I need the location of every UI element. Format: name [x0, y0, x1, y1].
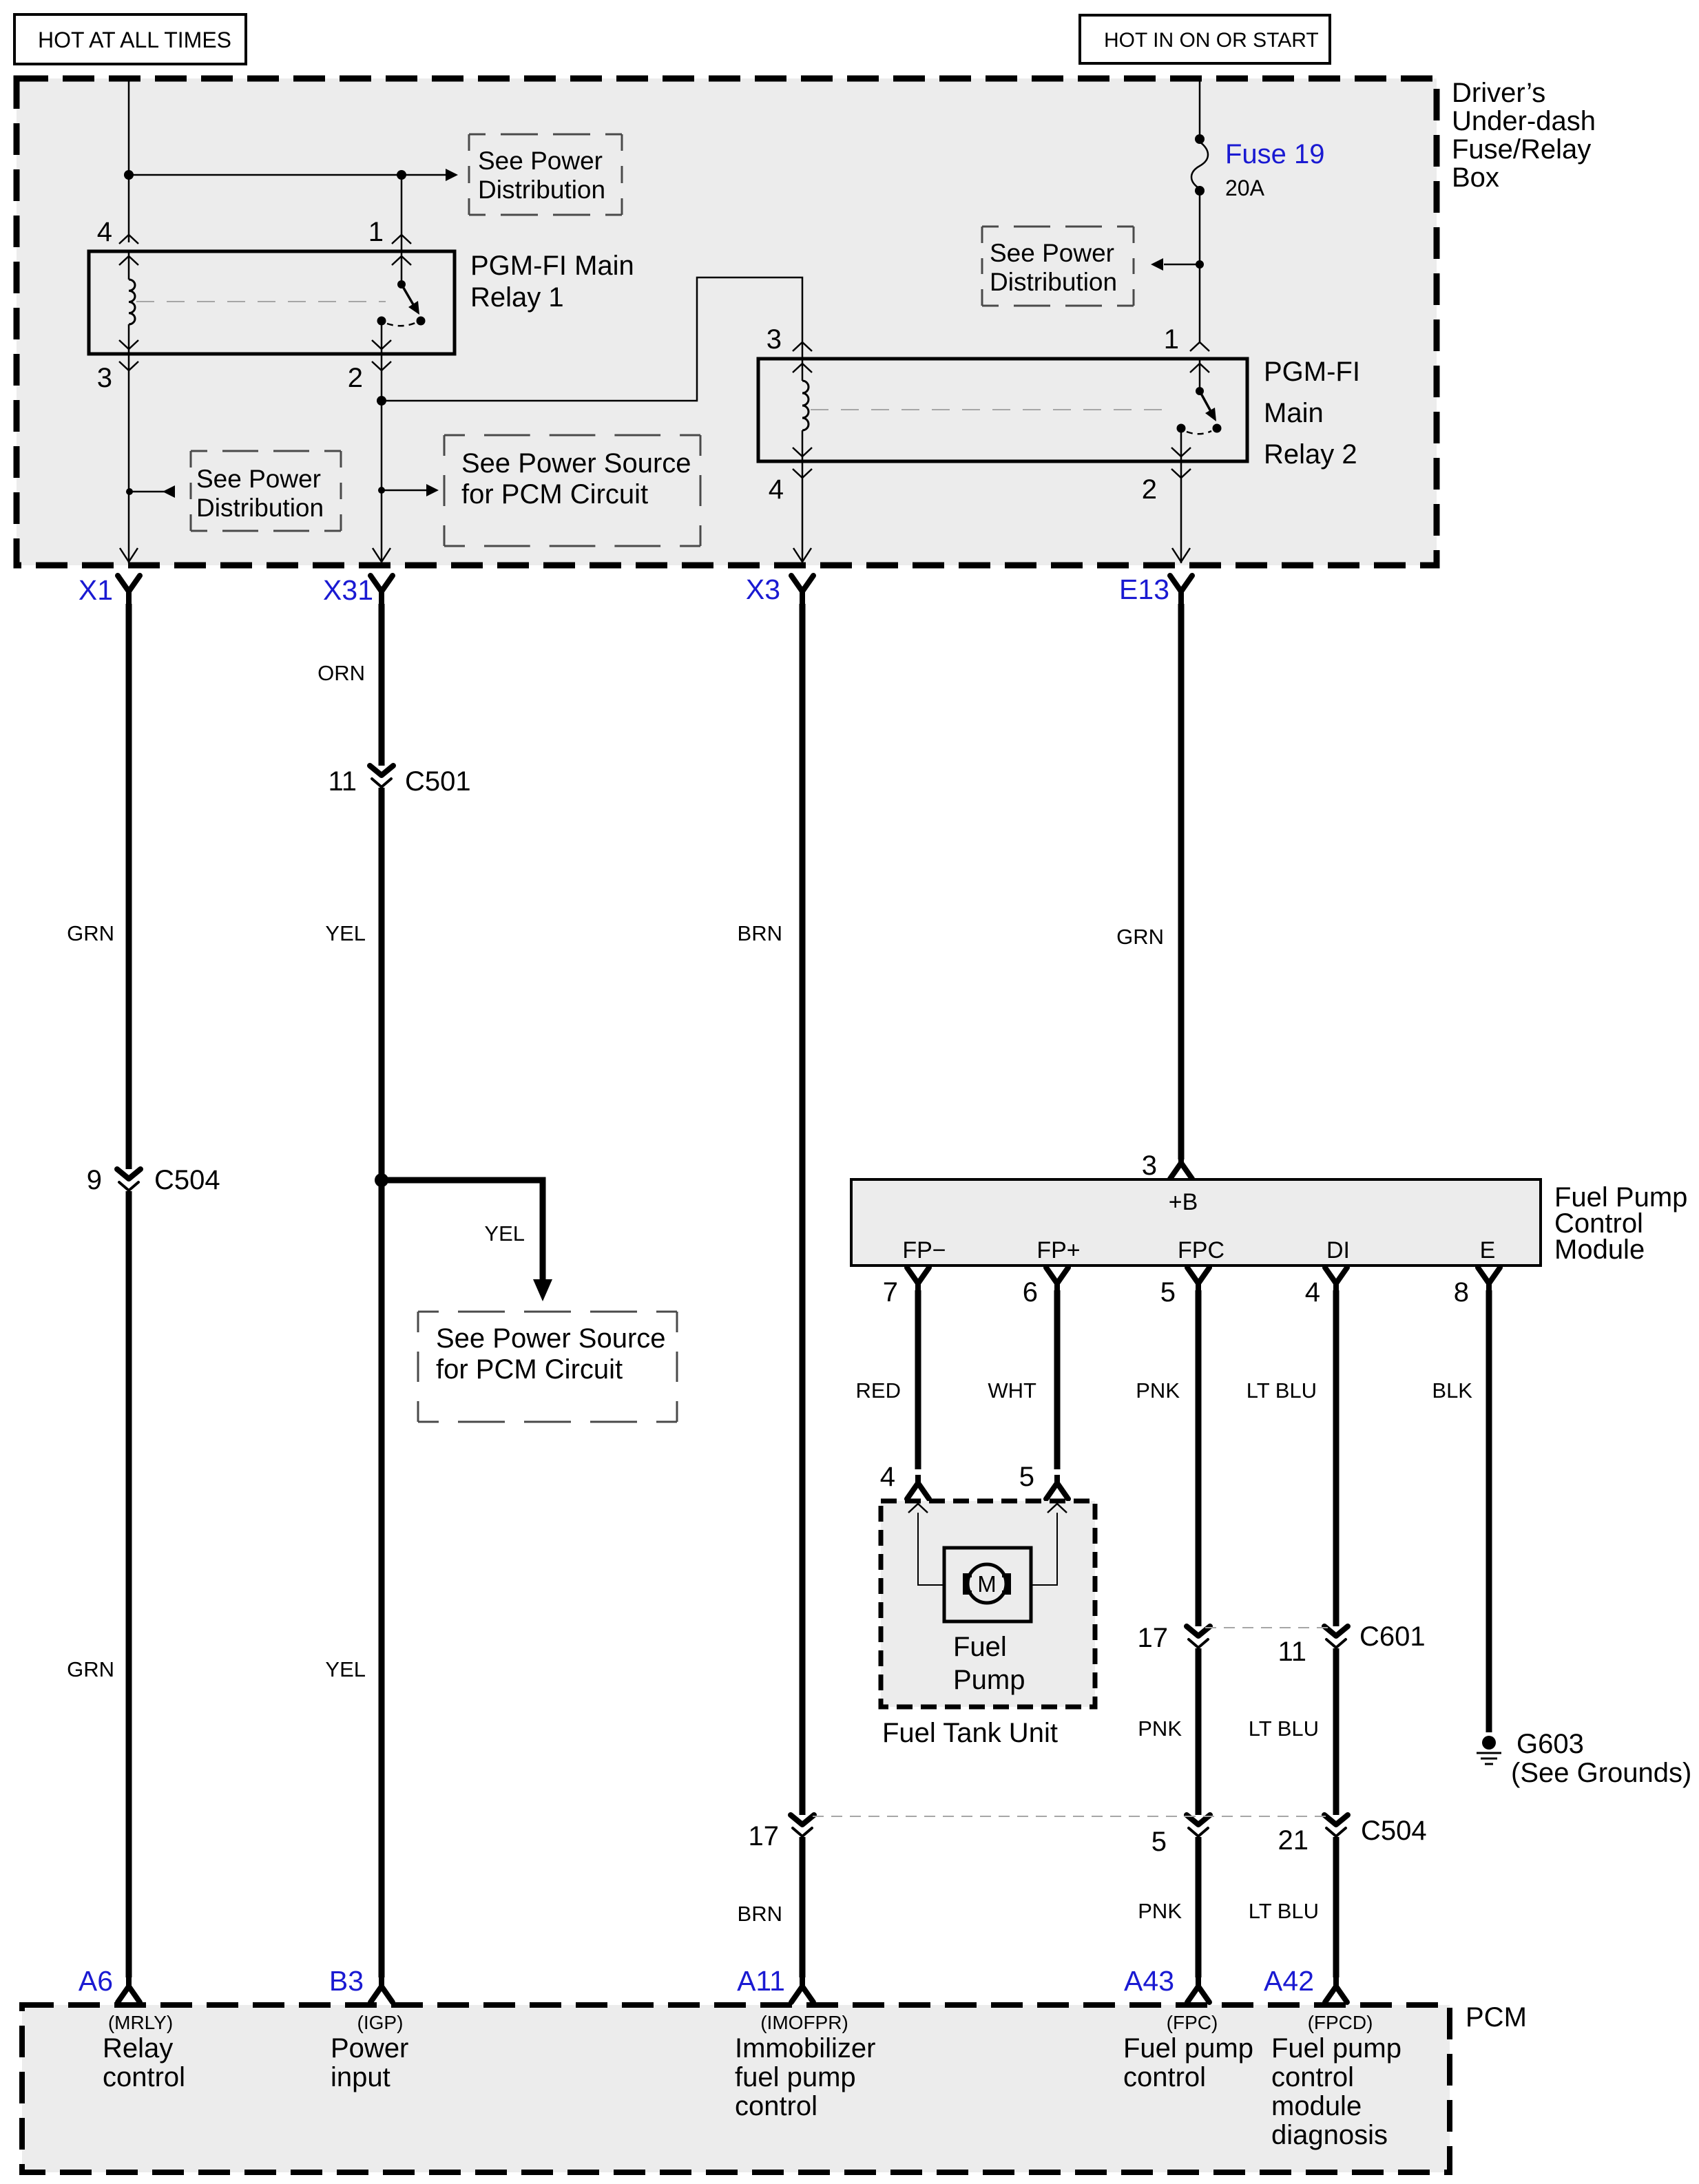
svg-text:1: 1 [1164, 324, 1179, 355]
svg-text:HOT IN ON OR START: HOT IN ON OR START [1104, 29, 1319, 52]
svg-text:PNK: PNK [1136, 1378, 1180, 1403]
svg-text:Fuel pump: Fuel pump [1271, 2033, 1401, 2064]
svg-text:+B: +B [1169, 1189, 1198, 1215]
svg-text:M: M [977, 1571, 997, 1597]
svg-text:control: control [1271, 2062, 1354, 2092]
svg-text:G603: G603 [1516, 1729, 1584, 1759]
svg-text:4: 4 [97, 217, 112, 247]
svg-text:8: 8 [1454, 1277, 1469, 1308]
svg-text:Under-dash: Under-dash [1452, 106, 1596, 136]
svg-text:WHT: WHT [988, 1378, 1036, 1403]
svg-text:FP+: FP+ [1036, 1237, 1080, 1263]
svg-text:BLK: BLK [1432, 1378, 1472, 1403]
svg-text:GRN: GRN [67, 1657, 114, 1681]
svg-text:A11: A11 [737, 1965, 785, 1997]
svg-text:ORN: ORN [317, 661, 365, 685]
svg-text:LT BLU: LT BLU [1249, 1899, 1319, 1923]
svg-text:HOT AT ALL TIMES: HOT AT ALL TIMES [38, 28, 231, 52]
svg-text:9: 9 [87, 1165, 102, 1195]
svg-text:Distribution: Distribution [196, 494, 324, 522]
svg-text:control: control [103, 2062, 185, 2092]
svg-text:Driver’s: Driver’s [1452, 78, 1545, 108]
svg-text:FPC: FPC [1178, 1237, 1224, 1263]
svg-text:6: 6 [1023, 1277, 1038, 1308]
svg-text:E: E [1480, 1237, 1496, 1263]
svg-text:(IGP): (IGP) [357, 2012, 404, 2033]
svg-text:B3: B3 [329, 1965, 364, 1997]
svg-text:Fuse 19: Fuse 19 [1225, 139, 1325, 169]
svg-text:7: 7 [883, 1277, 898, 1308]
svg-text:See Power: See Power [196, 465, 321, 493]
svg-text:(IMOFPR): (IMOFPR) [760, 2012, 848, 2033]
svg-text:1: 1 [368, 217, 384, 247]
svg-text:4: 4 [769, 474, 784, 505]
svg-text:input: input [331, 2062, 390, 2092]
svg-text:YEL: YEL [484, 1221, 525, 1246]
svg-text:E13: E13 [1119, 574, 1169, 605]
svg-text:(FPCD): (FPCD) [1308, 2012, 1373, 2033]
svg-text:YEL: YEL [325, 1657, 366, 1681]
svg-text:21: 21 [1278, 1825, 1309, 1856]
svg-text:2: 2 [1142, 474, 1157, 505]
svg-text:11: 11 [328, 766, 357, 797]
svg-text:See Power Source: See Power Source [461, 448, 691, 479]
svg-text:C504: C504 [1361, 1816, 1427, 1846]
svg-text:PNK: PNK [1138, 1899, 1182, 1923]
svg-text:GRN: GRN [67, 921, 114, 945]
svg-text:Power: Power [331, 2033, 408, 2064]
svg-text:module: module [1271, 2091, 1362, 2121]
svg-text:5: 5 [1151, 1827, 1167, 1857]
svg-text:2: 2 [348, 363, 363, 393]
svg-text:Immobilizer: Immobilizer [735, 2033, 875, 2064]
svg-text:Box: Box [1452, 162, 1499, 193]
svg-text:Distribution: Distribution [990, 268, 1117, 296]
svg-text:C504: C504 [154, 1165, 220, 1195]
svg-text:X3: X3 [746, 574, 780, 605]
svg-text:A6: A6 [79, 1965, 113, 1997]
svg-text:(FPC): (FPC) [1167, 2012, 1218, 2033]
svg-text:See Power Source: See Power Source [436, 1323, 666, 1354]
svg-text:BRN: BRN [738, 1902, 782, 1926]
svg-text:for PCM Circuit: for PCM Circuit [461, 479, 648, 510]
svg-text:control: control [1123, 2062, 1206, 2092]
svg-text:X1: X1 [79, 574, 113, 606]
svg-text:Fuse/Relay: Fuse/Relay [1452, 134, 1591, 165]
svg-text:Fuel pump: Fuel pump [1123, 2033, 1253, 2064]
svg-text:YEL: YEL [325, 921, 366, 945]
svg-text:Relay 1: Relay 1 [470, 282, 564, 313]
svg-text:X31: X31 [323, 574, 373, 606]
svg-text:GRN: GRN [1116, 925, 1164, 949]
svg-text:LT BLU: LT BLU [1249, 1716, 1319, 1741]
svg-text:PGM-FI Main: PGM-FI Main [470, 251, 634, 281]
svg-text:PNK: PNK [1138, 1716, 1182, 1741]
svg-text:Fuel: Fuel [953, 1632, 1007, 1662]
svg-text:20A: 20A [1225, 176, 1265, 200]
svg-text:17: 17 [749, 1821, 780, 1851]
svg-text:5: 5 [1019, 1462, 1034, 1492]
svg-text:Relay: Relay [103, 2033, 173, 2064]
svg-text:Fuel Tank Unit: Fuel Tank Unit [882, 1718, 1058, 1748]
svg-text:3: 3 [1142, 1151, 1157, 1181]
svg-text:See Power: See Power [478, 147, 603, 175]
svg-text:Distribution: Distribution [478, 176, 605, 204]
svg-text:C601: C601 [1359, 1621, 1426, 1652]
svg-text:5: 5 [1160, 1277, 1176, 1308]
svg-text:3: 3 [767, 324, 782, 355]
svg-text:Pump: Pump [953, 1665, 1025, 1695]
svg-text:LT BLU: LT BLU [1247, 1378, 1317, 1403]
svg-text:Module: Module [1554, 1235, 1645, 1265]
svg-text:17: 17 [1138, 1623, 1169, 1653]
svg-text:PGM-FI: PGM-FI [1264, 357, 1360, 387]
svg-text:diagnosis: diagnosis [1271, 2120, 1388, 2150]
svg-text:Relay 2: Relay 2 [1264, 439, 1357, 470]
svg-text:3: 3 [97, 363, 112, 393]
svg-text:A42: A42 [1264, 1965, 1314, 1997]
svg-text:BRN: BRN [738, 921, 782, 945]
svg-text:Main: Main [1264, 398, 1324, 428]
svg-text:11: 11 [1278, 1637, 1306, 1667]
svg-text:PCM: PCM [1466, 2002, 1527, 2033]
svg-text:C501: C501 [405, 766, 471, 797]
svg-text:4: 4 [1305, 1277, 1320, 1308]
svg-text:DI: DI [1326, 1237, 1350, 1263]
svg-text:RED: RED [856, 1378, 901, 1403]
svg-text:(MRLY): (MRLY) [108, 2012, 173, 2033]
svg-text:(See Grounds): (See Grounds) [1511, 1758, 1691, 1788]
svg-text:for PCM Circuit: for PCM Circuit [436, 1354, 623, 1385]
svg-text:4: 4 [880, 1462, 895, 1492]
svg-text:FP−: FP− [902, 1237, 946, 1263]
svg-text:A43: A43 [1124, 1965, 1174, 1997]
svg-text:See Power: See Power [990, 239, 1114, 267]
svg-text:fuel pump: fuel pump [735, 2062, 856, 2092]
svg-text:control: control [735, 2091, 817, 2121]
